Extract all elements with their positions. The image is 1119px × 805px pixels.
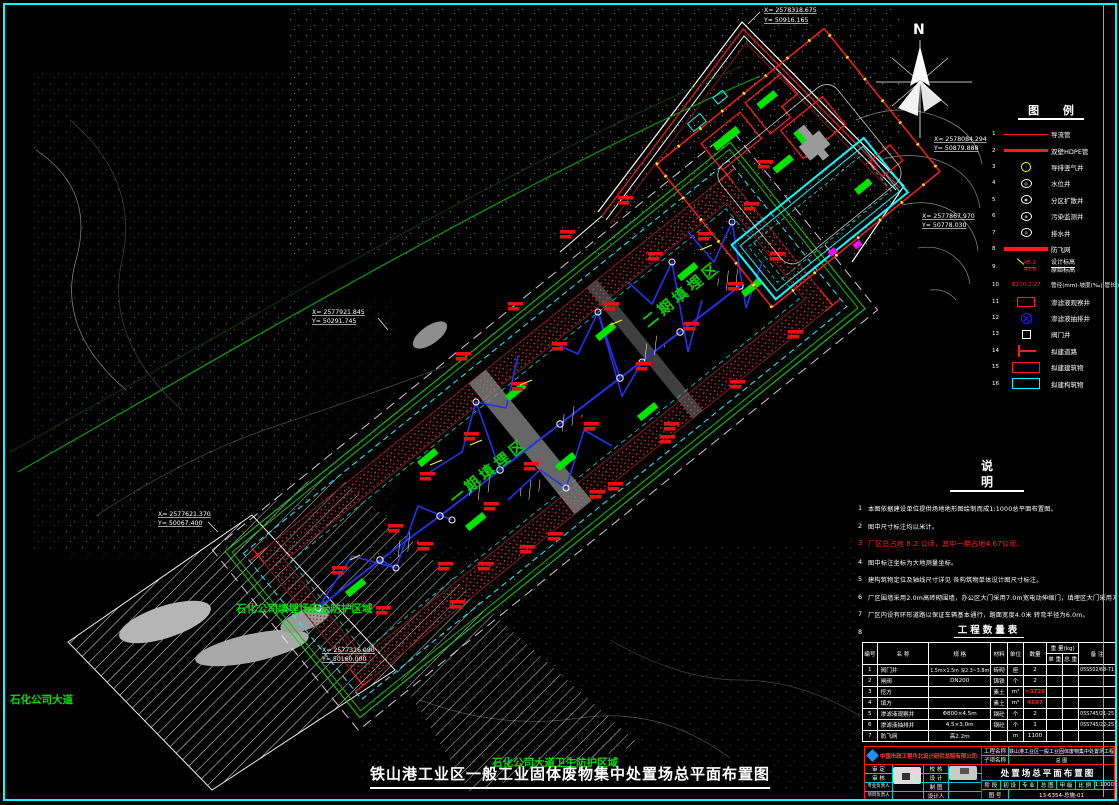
water-level-well-symbol: ◎ — [1021, 179, 1032, 188]
legend-title: 图 例 — [1018, 103, 1084, 120]
svg-text:X= 2577921.845: X= 2577921.845 — [312, 309, 365, 316]
legend-item: 8防飞网 — [992, 241, 1110, 257]
legend-item: 13阀门井 — [992, 326, 1110, 342]
svg-text:Y= 50879.888: Y= 50879.888 — [933, 145, 978, 152]
notes-title: 说 明 — [950, 458, 1024, 492]
legend-item: 3导排竖气井 — [992, 159, 1110, 175]
svg-text:Y= 50160.000: Y= 50160.000 — [321, 656, 366, 663]
diffusion-well-symbol: ◉ — [1021, 195, 1032, 204]
legend-item: 7⊙排水井 — [992, 224, 1110, 240]
table-row: 2闸阀DN200铸铁个2 — [863, 676, 1116, 687]
observation-well-symbol — [1017, 297, 1035, 307]
elevation-symbol: 45.243.6 — [1016, 261, 1036, 273]
legend-item: 2双壁HDPE管 — [992, 142, 1110, 158]
subitem-row: 子项名称 总 图 — [982, 756, 1114, 764]
legend-item: 5◉分区扩散井 — [992, 192, 1110, 208]
legend-item: 15拟建建筑物 — [992, 359, 1110, 375]
cad-drawing-canvas: N X= 2578318.675 Y= 50916.165 X= 2578084… — [0, 0, 1119, 805]
pipe-spec-symbol: Φ200-2-27 — [1011, 282, 1040, 288]
svg-text:X= 2578318.675: X= 2578318.675 — [764, 7, 817, 14]
note-item: 2图中尺寸标注均以米计。 — [858, 522, 1116, 531]
legend-item: 12渗滤液抽排井 — [992, 310, 1110, 326]
quantity-table: 编号 名 称 规 格 材料 单位 数量 重 量(kg) 备 注 单 重 总 重 … — [862, 642, 1116, 742]
thin-red-line-symbol — [1004, 134, 1048, 135]
legend-item: 10 Φ200-2-27 管径(mm)-坡度(‰)-管长(m) — [992, 277, 1110, 293]
note-item: 7厂区内设有环形道路以保证车辆基本通行，路面宽度4.0米 转弯半径为6.0m。 — [858, 610, 1116, 619]
pump-well-symbol — [1021, 313, 1032, 324]
legend-panel: 图 例 1导流管 2双壁HDPE管 3导排竖气井 4◎水位井 5◉分区扩散井 6… — [992, 103, 1110, 392]
svg-text:Y= 50778.030: Y= 50778.030 — [921, 222, 966, 229]
gas-well-symbol — [1021, 162, 1031, 172]
svg-text:X= 2577316.090: X= 2577316.090 — [322, 647, 375, 654]
quantity-table-panel: 工程数量表 编号 名 称 规 格 材料 单位 数量 重 量(kg) 备 注 单 … — [862, 624, 1116, 742]
table-row: 5渗滤液观察井Φ800×4.5m钢砼个205S745/21-25 — [863, 709, 1116, 720]
main-drawing-title: 铁山港工业区一般工业固体废物集中处置场总平面布置图 — [370, 763, 770, 789]
legend-item: 9 45.243.6 设计标高原始标高 — [992, 257, 1110, 277]
signature-stamp — [893, 767, 921, 784]
proposed-structure-symbol — [1012, 378, 1040, 389]
legend-item: 11渗滤液观察井 — [992, 294, 1110, 310]
legend-item: 4◎水位井 — [992, 175, 1110, 191]
company-logo-icon — [866, 749, 879, 762]
note-item: 1本图依据建设单位提供场地地形图绘制而成1:1000总平面布置图。 — [858, 504, 1116, 513]
drawing-meta-row: 阶 段初 设 专 业总 图 甲 级 比 例1:1000 — [982, 781, 1114, 790]
svg-text:Y= 50916.165: Y= 50916.165 — [763, 17, 808, 24]
legend-item: 6⊕污染监测井 — [992, 208, 1110, 224]
table-row: 1阀门井1.5m×1.5m 深2.3~3.8m砖砌座205S502/68-71 — [863, 665, 1116, 676]
monitoring-well-symbol: ⊕ — [1021, 212, 1032, 221]
drawing-number-row: 图 号 13-6354-总施-01 — [982, 790, 1114, 799]
svg-text:X= 2577867.970: X= 2577867.970 — [922, 213, 975, 220]
thick-red-line-symbol — [1004, 149, 1048, 152]
project-name-row: 工程名称 铁山港工业区一般工业固体废物集中处置场工程 — [982, 747, 1114, 756]
proposed-road-symbol — [1014, 345, 1038, 357]
table-row: 3挖方素土m³≈3726 — [863, 687, 1116, 698]
note-item-highlight: 3厂区总占地 8.2 公顷，其中一期占地4.67公顷。 — [858, 539, 1116, 549]
table-row: 7防飞网高2.2mm1100 — [863, 731, 1116, 742]
quantity-table-title: 工程数量表 — [954, 624, 1024, 638]
bird-net-symbol — [1004, 247, 1048, 251]
svg-text:X= 2577621.370: X= 2577621.370 — [158, 511, 211, 518]
note-item: 6厂区围墙采用2.0m高砖砌围墙，办公区大门采用7.0m宽电动伸缩门，填埋区大门… — [858, 593, 1116, 602]
title-block: 中国市政工程华北设计研究总院有限公司 工程名称 铁山港工业区一般工业固体废物集中… — [864, 746, 1115, 801]
drainage-well-symbol: ⊙ — [1021, 228, 1032, 237]
signature-grid: 审 定校 核 审 核设 计 专业负责人制 图 项目负责人设计人 — [865, 765, 982, 799]
protection-zone-label: 石化公司填埋场安全防护区域 — [235, 602, 373, 615]
drawing-title: 处置场总平面布置图 — [982, 765, 1114, 781]
legend-item: 16拟建构筑物 — [992, 375, 1110, 391]
table-row: 6渗滤液抽排井4.5×3.0m钢砼个105S745/22-25 — [863, 720, 1116, 731]
road-name-label: 石化公司大道 — [9, 693, 73, 706]
north-label: N — [913, 22, 925, 38]
svg-text:X= 2578084.294: X= 2578084.294 — [934, 136, 987, 143]
note-item: 5建构筑物定位及轴线尺寸详见 各构筑物单体设计图尺寸标注。 — [858, 575, 1116, 584]
drawing-frame-inner-line — [1103, 5, 1104, 797]
valve-well-symbol — [1022, 330, 1031, 339]
legend-item: 14拟建道路 — [992, 343, 1110, 359]
note-item: 4图中标注坐标为大地测量坐标。 — [858, 558, 1116, 567]
legend-item: 1导流管 — [992, 126, 1110, 142]
design-company: 中国市政工程华北设计研究总院有限公司 — [865, 747, 982, 764]
phase-1-label: 一期填埋区 — [446, 434, 531, 508]
svg-text:Y= 50067.400: Y= 50067.400 — [157, 520, 202, 527]
table-row: 4填方素土m³4697 — [863, 698, 1116, 709]
signature-stamp — [949, 766, 977, 780]
svg-text:Y= 50291.745: Y= 50291.745 — [311, 318, 356, 325]
proposed-building-symbol — [1012, 362, 1040, 373]
notes-panel: 说 明 1本图依据建设单位提供场地地形图绘制而成1:1000总平面布置图。 2图… — [858, 458, 1116, 645]
